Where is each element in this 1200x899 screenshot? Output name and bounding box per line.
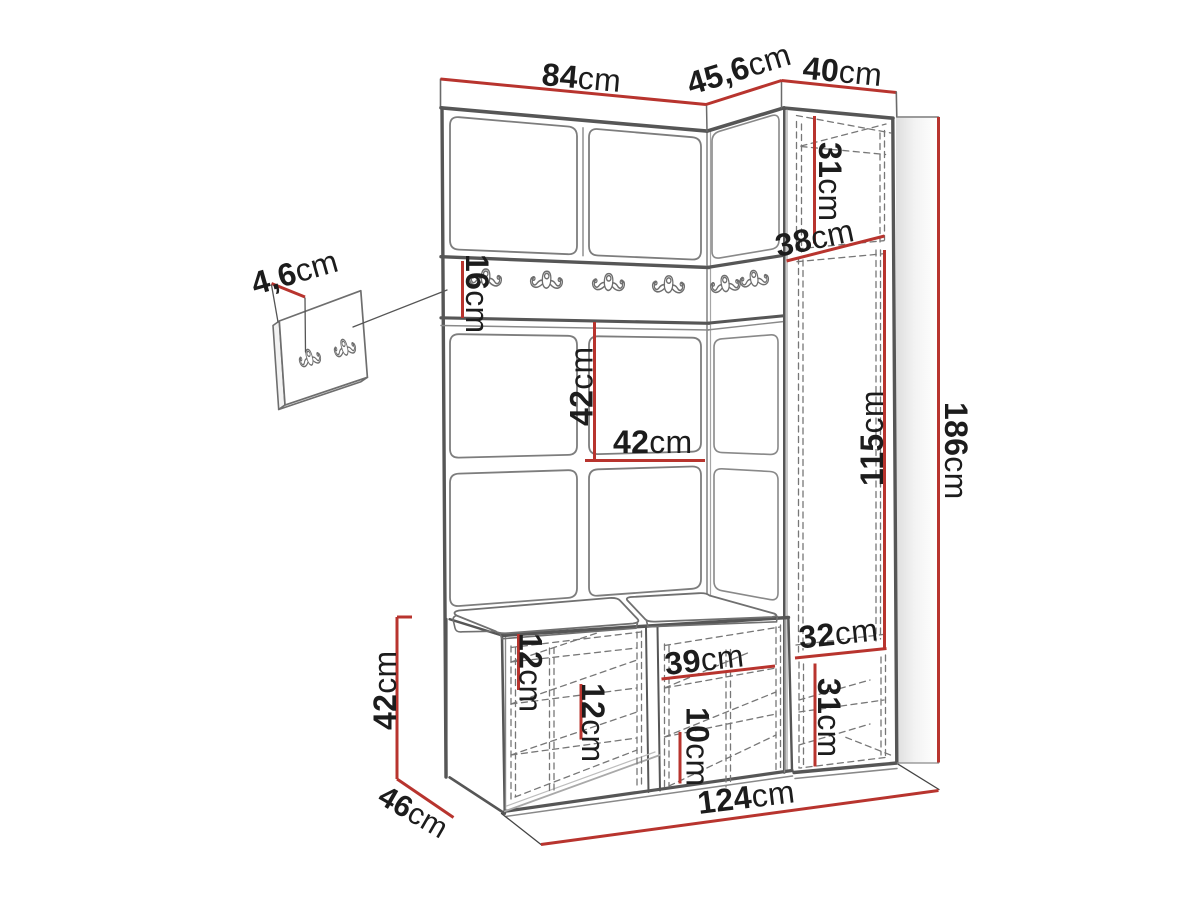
svg-text:84cm: 84cm (540, 56, 622, 99)
svg-text:115cm: 115cm (854, 390, 890, 486)
svg-text:186cm: 186cm (938, 402, 974, 500)
svg-text:42cm: 42cm (613, 424, 692, 460)
svg-text:40cm: 40cm (801, 50, 884, 93)
svg-text:12cm: 12cm (513, 633, 549, 712)
svg-text:31cm: 31cm (812, 142, 848, 221)
svg-text:12cm: 12cm (575, 683, 611, 762)
svg-text:42cm: 42cm (564, 347, 600, 426)
svg-text:31cm: 31cm (811, 678, 847, 757)
svg-text:10cm: 10cm (680, 707, 716, 786)
svg-text:42cm: 42cm (367, 651, 403, 730)
svg-text:16cm: 16cm (459, 254, 495, 333)
